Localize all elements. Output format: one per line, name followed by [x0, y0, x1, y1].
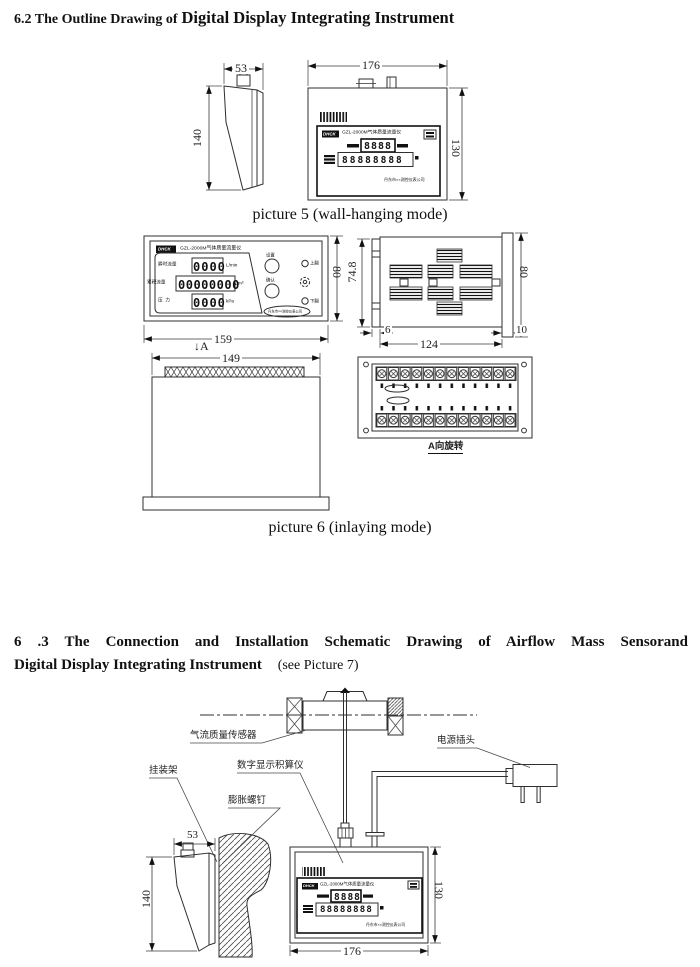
p7-dim-side-height: 140 — [140, 886, 152, 912]
p6-side-view — [357, 233, 528, 348]
p6-btn-down-label: 下翻 — [310, 299, 319, 303]
p6-row2-unit: m³ — [238, 281, 243, 286]
p6-brand-logo: DHCK — [158, 247, 171, 251]
p6-panel-title: GZL-2000M气体质量流量仪 — [180, 246, 241, 251]
p7-label-instrument: 数字显示积算仪 — [237, 761, 304, 771]
p6-row1-unit: L/min — [226, 263, 237, 268]
engineering-drawing-canvas — [0, 0, 700, 967]
p7-pipe-sensor — [200, 688, 477, 736]
p7-power-cord-plug — [366, 765, 557, 848]
p6-view-a-arrow: ↓A — [193, 340, 210, 352]
p6-row3-unit: kPa — [226, 299, 234, 304]
p5-brand-logo: DHCK — [323, 132, 336, 136]
p6-row1-value: 0000 — [193, 261, 222, 273]
p7-dim-front-width: 176 — [341, 945, 363, 957]
p7-front-view — [290, 847, 441, 956]
p5-model-title: GZL-2000M气体质量流量仪 — [342, 130, 401, 135]
p7-flow-digits: 8888 — [334, 893, 361, 903]
p7-dim-front-height: 130 — [433, 877, 445, 903]
section-6-2-title-main: Digital Display Integrating Instrument — [181, 8, 454, 27]
p6-dim-cutout-width: 149 — [220, 352, 242, 364]
p6-btn-up-label: 上翻 — [310, 261, 319, 265]
p7-label-screw: 膨胀螺钉 — [228, 796, 266, 806]
section-6-3-title-line2: Digital Display Integrating Instrument (… — [14, 657, 688, 674]
p5-dim-side-width: 53 — [233, 62, 249, 74]
section-6-2-title: 6.2 The Outline Drawing of Digital Displ… — [14, 8, 454, 28]
p7-label-sensor: 气流质量传感器 — [190, 731, 257, 741]
p6-dim-flange: 10 — [515, 325, 528, 336]
p7-brand-logo: DHCK — [303, 884, 315, 888]
p7-dim-side-width: 53 — [186, 830, 199, 841]
p6-row2-value: 00000000 — [178, 279, 234, 291]
section-6-3-title-line1: 6 .3 The Connection and Installation Sch… — [14, 634, 688, 651]
p7-total-digits: 88888888 — [320, 906, 373, 915]
section-6-3-title-suffix: (see Picture 7) — [278, 658, 359, 673]
p6-company-oval-text: 丹东市××测控仪表公司 — [268, 310, 302, 313]
p7-label-bracket: 挂装架 — [149, 766, 178, 776]
p5-total-digits: 88888888 — [342, 156, 404, 166]
section-6-2-title-prefix: 6.2 The Outline Drawing of — [14, 12, 177, 27]
p7-side-wall-view — [146, 833, 271, 957]
p6-dim-panel-height: 80 — [331, 263, 343, 281]
p5-dim-side-height: 140 — [191, 125, 203, 151]
p5-flow-digits: 8888 — [364, 142, 392, 152]
manual-page: 6.2 The Outline Drawing of Digital Displ… — [0, 0, 700, 967]
p5-dim-front-width: 176 — [360, 59, 382, 71]
p6-dim-panel-width: 159 — [212, 333, 234, 345]
p6-dim-bezel: 6 — [384, 325, 392, 336]
p5-side-view — [206, 63, 263, 190]
p6-btn-confirm-label: 确认 — [266, 278, 275, 282]
p6-inlay-front — [143, 353, 329, 510]
picture5-caption: picture 5 (wall-hanging mode) — [140, 206, 560, 224]
p5-company-text: 丹东市××测控仪表公司 — [384, 178, 425, 182]
p6-terminal-caption: A向旋转 — [428, 442, 463, 454]
p6-row1-label: 瞬时流量 — [158, 262, 177, 267]
picture6-caption: picture 6 (inlaying mode) — [140, 519, 560, 537]
p7-model-title: GZL-2000M气体质量流量仪 — [320, 882, 374, 886]
p7-company-text: 丹东市××测控仪表公司 — [366, 923, 405, 927]
section-6-3-title-line2-main: Digital Display Integrating Instrument — [14, 657, 262, 673]
p6-dim-side-height: 80 — [518, 263, 530, 281]
p6-terminal-view — [358, 357, 532, 438]
p6-dim-body: 124 — [418, 338, 440, 350]
p6-row2-label: 累积流量 — [147, 280, 166, 285]
p6-front-panel — [144, 236, 343, 343]
p5-dim-front-height: 130 — [450, 135, 462, 161]
p6-row3-label: 压 力 — [158, 298, 170, 303]
p6-btn-set-label: 设置 — [266, 253, 275, 257]
p7-label-power-plug: 电源插头 — [437, 736, 475, 746]
p6-row3-value: 0000 — [193, 297, 222, 309]
p6-dim-side-depth: 74.8 — [346, 257, 358, 287]
